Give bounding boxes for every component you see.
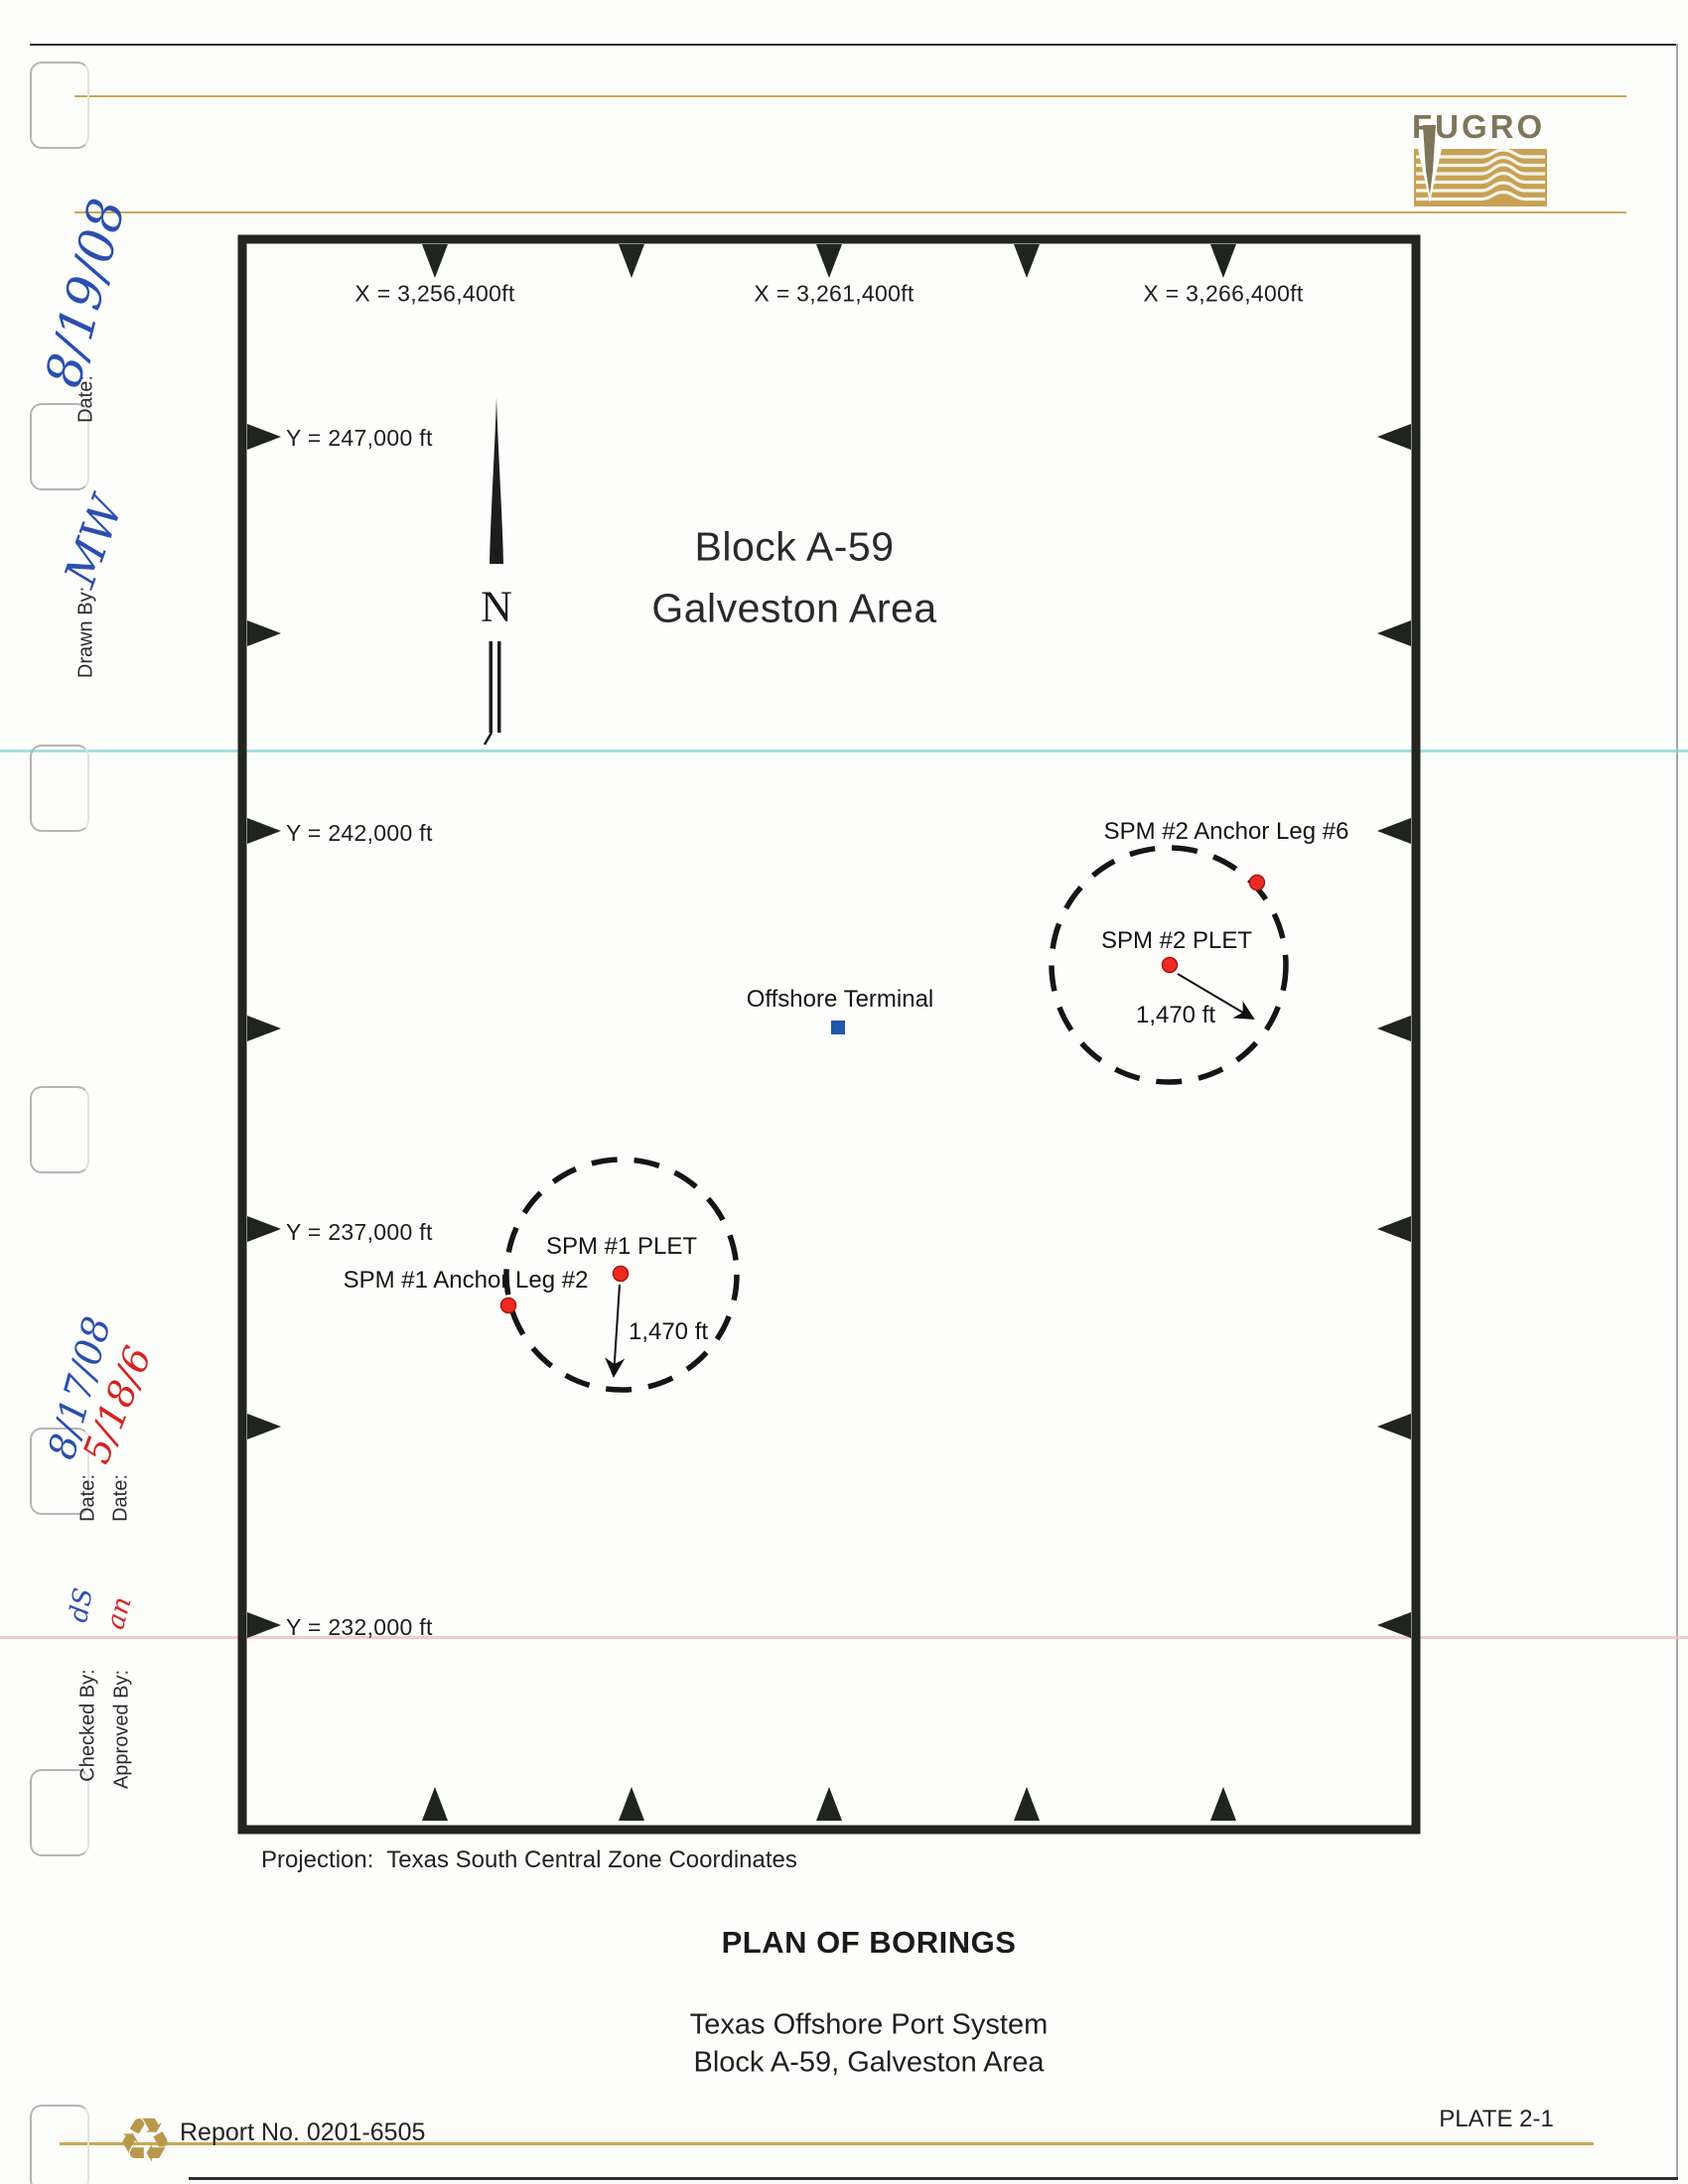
punch-hole bbox=[30, 2105, 89, 2184]
spm1-plet-marker bbox=[614, 1267, 629, 1282]
punch-hole bbox=[30, 1769, 89, 1856]
bottom-border-line bbox=[189, 2177, 1678, 2180]
map-graphics bbox=[0, 0, 1688, 2184]
offshore-terminal-marker bbox=[831, 1021, 845, 1034]
fugro-wordmark: FUGRO bbox=[1412, 108, 1545, 146]
margin-value-checked-by: dS bbox=[64, 1585, 99, 1624]
margin-value-drawn-by: MW bbox=[56, 490, 134, 592]
punch-hole bbox=[30, 745, 89, 832]
spm2-plet-label: SPM #2 PLET bbox=[1101, 927, 1252, 955]
gold-rule-top bbox=[74, 95, 1626, 97]
spm2-anchor-circle bbox=[1052, 848, 1286, 1082]
punch-hole bbox=[30, 62, 89, 149]
fugro-logo: FUGRO bbox=[1408, 97, 1567, 212]
y-coord-label-3: Y = 237,000 ft bbox=[286, 1219, 433, 1246]
map-frame bbox=[242, 239, 1416, 1830]
projection-note: Projection: Texas South Central Zone Coo… bbox=[261, 1846, 797, 1874]
spm2-radius-label: 1,470 ft bbox=[1136, 1002, 1215, 1029]
map-title-line2: Galveston Area bbox=[651, 586, 936, 632]
offshore-terminal-label: Offshore Terminal bbox=[747, 986, 934, 1014]
recycle-icon: ♻ bbox=[117, 2105, 173, 2177]
margin-label-approved-by: Approved By: bbox=[111, 1670, 134, 1789]
spm1-anchor-leg2-marker bbox=[501, 1298, 516, 1313]
margin-label-drawn-by: Drawn By: bbox=[75, 587, 98, 678]
cyan-scanline bbox=[0, 750, 1688, 752]
report-number: Report No. 0201-6505 bbox=[180, 2118, 425, 2147]
plan-title: PLAN OF BORINGS bbox=[722, 1925, 1017, 1961]
spm2-anchor-leg6-label: SPM #2 Anchor Leg #6 bbox=[1104, 818, 1349, 846]
margin-value-approved-by: an bbox=[100, 1594, 137, 1633]
north-arrow bbox=[485, 397, 503, 745]
y-coord-label-2: Y = 242,000 ft bbox=[286, 820, 433, 847]
spm2-plet-marker bbox=[1163, 958, 1178, 973]
margin-label-date-3: Date: bbox=[110, 1474, 133, 1522]
spm1-anchor-leg2-label: SPM #1 Anchor Leg #2 bbox=[344, 1267, 589, 1295]
spm2-anchor-leg6-marker bbox=[1250, 876, 1265, 890]
plate-number: PLATE 2-1 bbox=[1439, 2106, 1554, 2133]
margin-label-date-2: Date: bbox=[77, 1474, 100, 1522]
y-coord-label-4: Y = 232,000 ft bbox=[286, 1614, 433, 1641]
y-coord-label-1: Y = 247,000 ft bbox=[286, 425, 433, 452]
pink-scanline bbox=[0, 1636, 1688, 1639]
spm1-plet-label: SPM #1 PLET bbox=[546, 1233, 697, 1261]
gold-rule-under-logo bbox=[74, 211, 1626, 213]
right-edge-line bbox=[1676, 44, 1678, 2180]
subtitle-line2: Block A-59, Galveston Area bbox=[693, 2047, 1044, 2080]
x-coord-label-3: X = 3,266,400ft bbox=[1143, 281, 1303, 308]
north-label: N bbox=[481, 582, 512, 632]
subtitle-line1: Texas Offshore Port System bbox=[690, 2009, 1049, 2042]
margin-value-date-1: 8/19/08 bbox=[35, 193, 137, 392]
top-border-line bbox=[30, 44, 1678, 46]
spm1-radius-arrow bbox=[614, 1285, 620, 1376]
plate-page: FUGRO Date: 8/19/08 Drawn By: MW Date: 8… bbox=[0, 0, 1688, 2184]
grid-ticks bbox=[247, 244, 1411, 1821]
spm1-radius-label: 1,470 ft bbox=[629, 1318, 708, 1346]
margin-label-checked-by: Checked By: bbox=[77, 1669, 100, 1781]
punch-hole bbox=[30, 1086, 89, 1173]
x-coord-label-1: X = 3,256,400ft bbox=[354, 281, 514, 308]
map-title-line1: Block A-59 bbox=[695, 524, 895, 571]
x-coord-label-2: X = 3,261,400ft bbox=[754, 281, 914, 308]
